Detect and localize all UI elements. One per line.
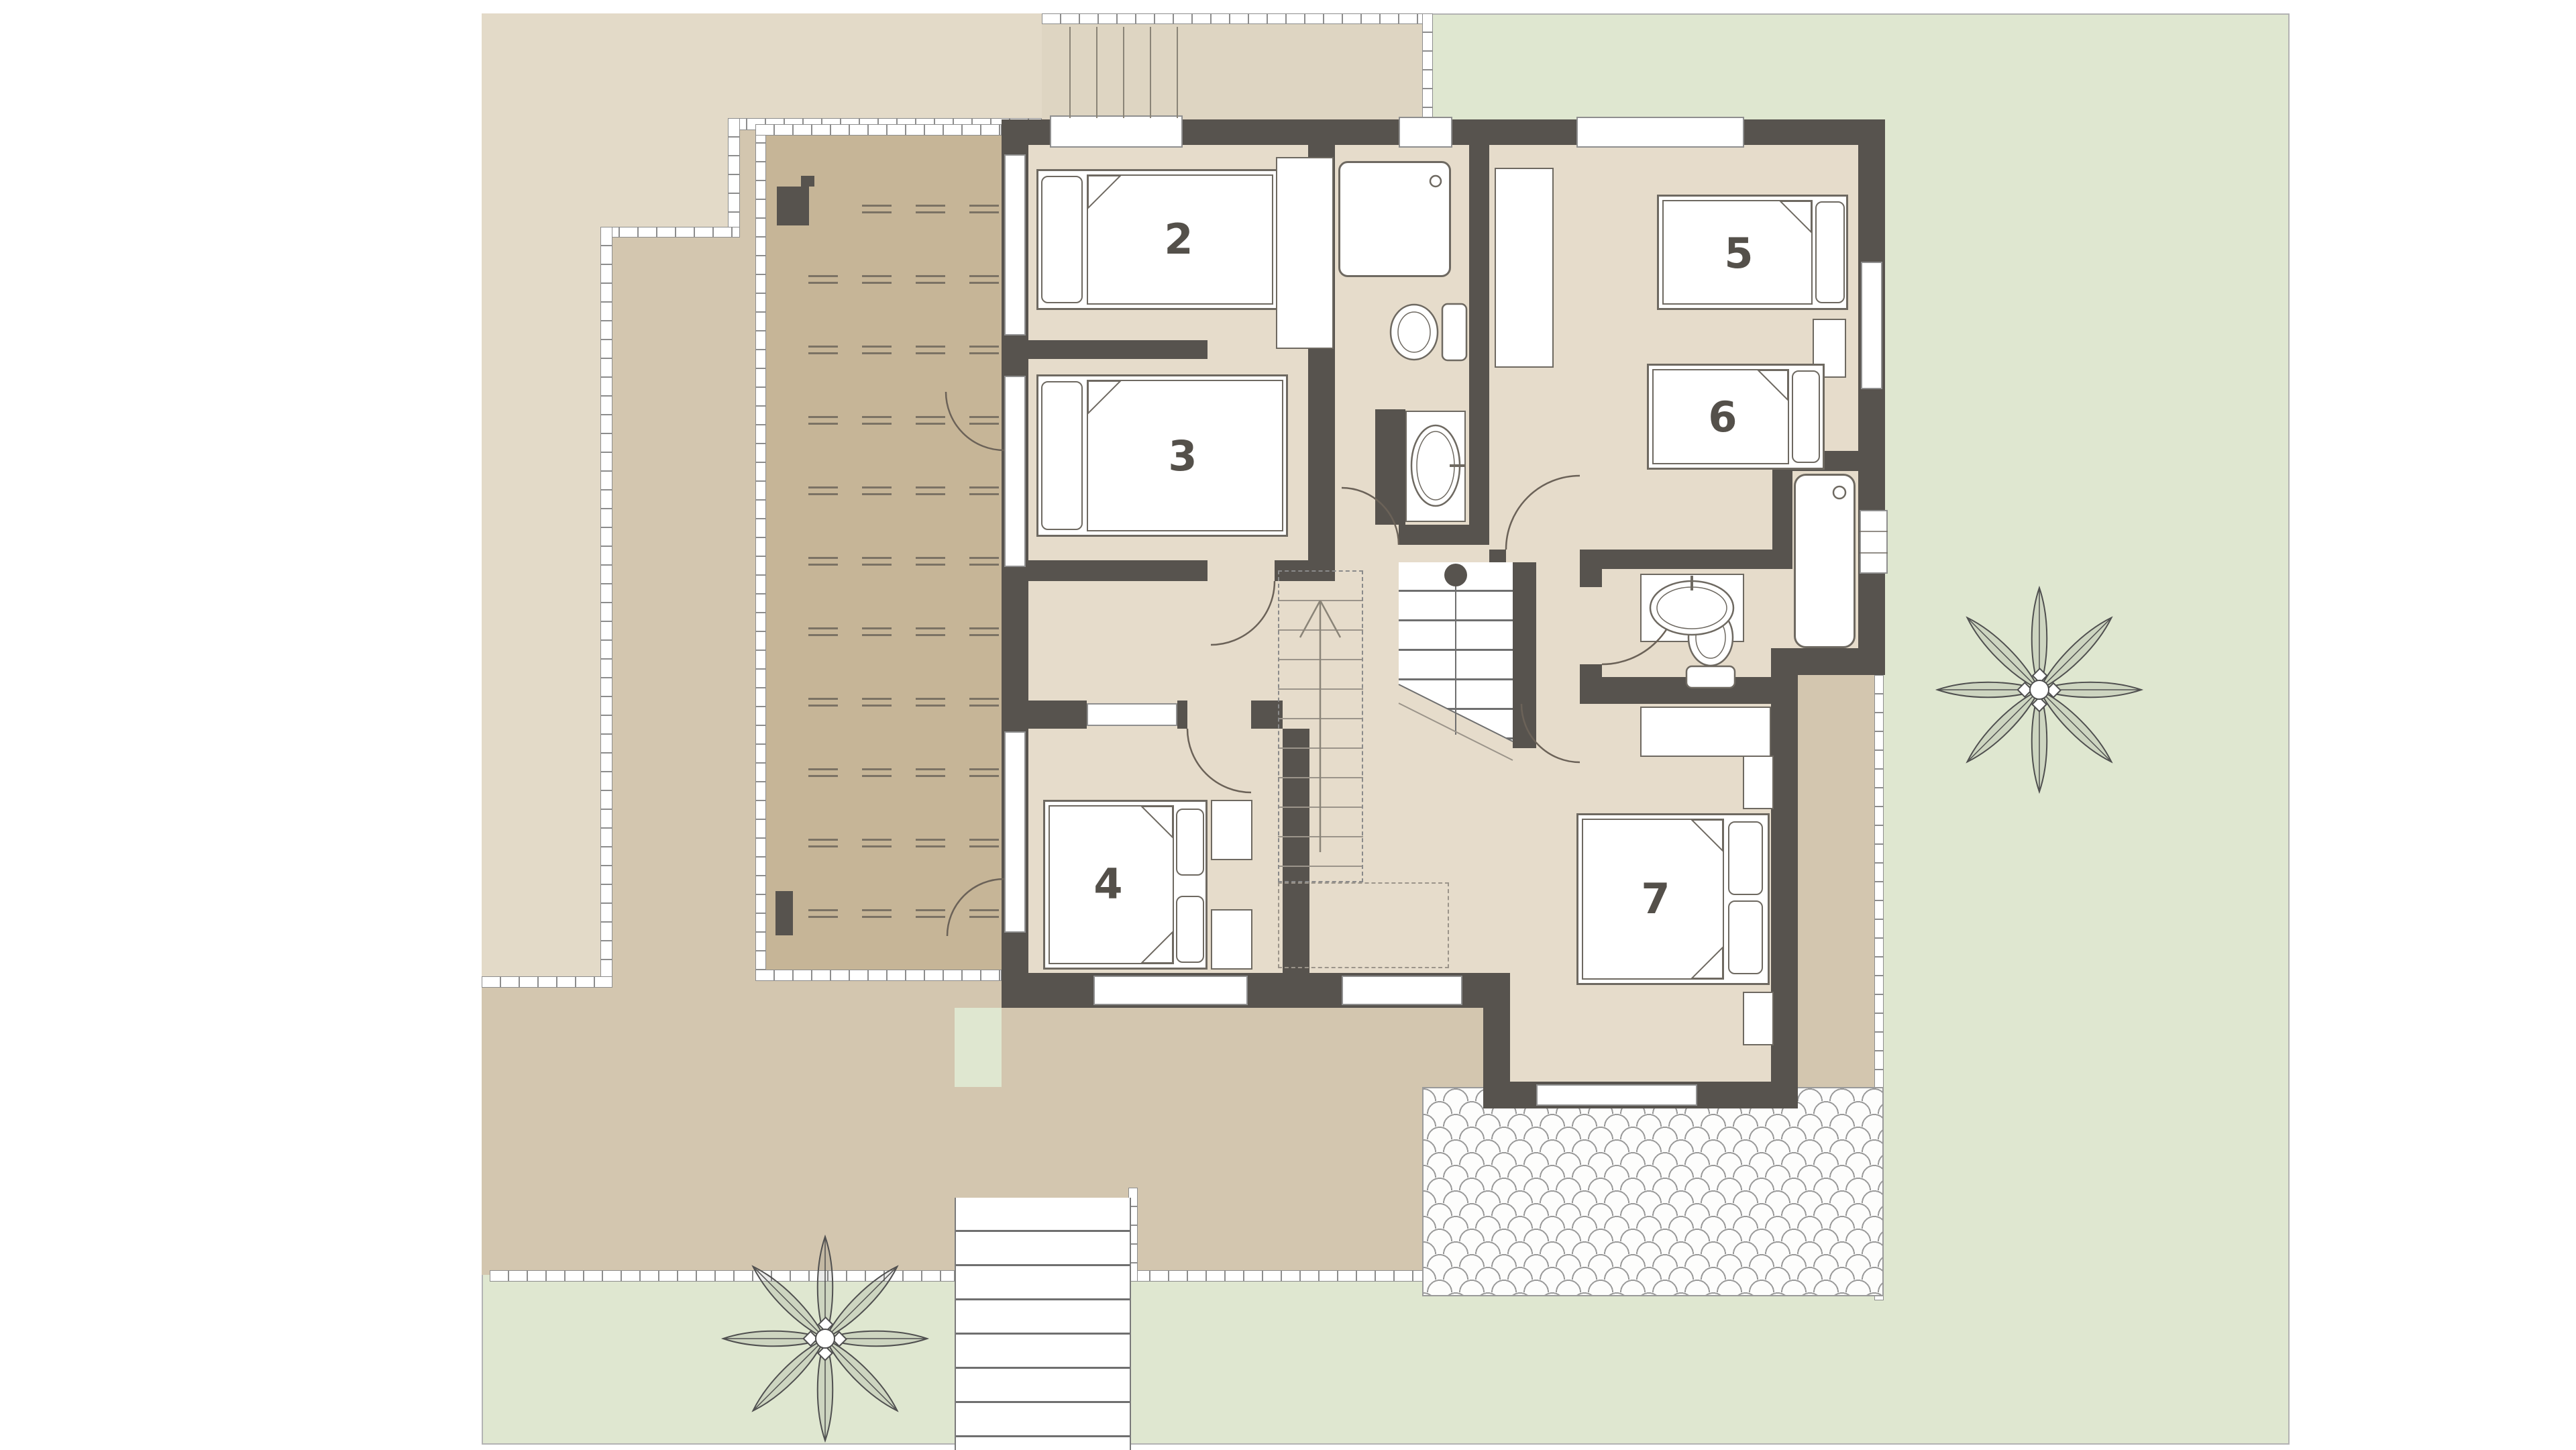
- nightstand-room4: [1211, 800, 1252, 860]
- deck-plank-mark: [916, 346, 945, 348]
- deck-plank-mark: [862, 839, 892, 841]
- driveway: [1131, 1198, 1422, 1275]
- bed-7-pillow: [1728, 900, 1763, 974]
- deck-plank-mark: [916, 845, 945, 847]
- deck-plank-mark: [862, 211, 892, 213]
- driveway: [1002, 1008, 1483, 1087]
- terrace-deck: [765, 136, 1002, 970]
- nightstand-room7: [1743, 756, 1774, 809]
- deck-plank-mark: [862, 564, 892, 566]
- deck-plank-mark: [969, 634, 999, 636]
- deck-plank-mark: [969, 416, 999, 418]
- fence-bottom-left: [490, 1270, 955, 1282]
- deck-plank-mark: [916, 282, 945, 284]
- deck-plank-mark: [916, 627, 945, 629]
- deck-plank-mark: [808, 352, 838, 354]
- bed-7-pillow: [1728, 821, 1763, 895]
- back-terrace: [1042, 13, 1428, 121]
- window-bath1-top: [1399, 117, 1452, 148]
- deck-plank-mark: [916, 705, 945, 707]
- wall-rooms23-divider: [1028, 340, 1207, 359]
- deck-plank-mark: [916, 423, 945, 425]
- deck-plank-mark: [862, 775, 892, 777]
- deck-plank-mark: [916, 634, 945, 636]
- deck-plank-mark: [862, 916, 892, 918]
- fence: [728, 118, 740, 238]
- window-bath2-right: [1860, 510, 1888, 574]
- deck-plank-mark: [808, 698, 838, 700]
- deck-plank-mark: [969, 493, 999, 495]
- driveway: [606, 236, 765, 983]
- wall-room4-north: [1177, 701, 1187, 729]
- deck-plank-mark: [862, 768, 892, 770]
- deck-plank-mark: [808, 282, 838, 284]
- wardrobe-room7: [1640, 707, 1771, 757]
- deck-plank-mark: [916, 557, 945, 559]
- sink-counter-bath2: [1640, 574, 1744, 642]
- door-terrace-middle: [1004, 376, 1026, 567]
- deck-plank-mark: [862, 557, 892, 559]
- deck-plank-mark: [862, 909, 892, 911]
- door-terrace-lower: [1004, 731, 1026, 933]
- room-4-label: 4: [1093, 864, 1122, 905]
- stairs-up-dashed-flight: [1278, 570, 1363, 882]
- deck-plank-mark: [862, 423, 892, 425]
- wardrobe-rooms56: [1495, 168, 1554, 368]
- driveway: [765, 981, 1002, 1008]
- stairs-dashed-landing: [1278, 882, 1449, 968]
- deck-plank-mark: [969, 211, 999, 213]
- fence-back-terrace: [1042, 13, 1428, 24]
- deck-plank-mark: [916, 205, 945, 207]
- deck-plank-mark: [808, 839, 838, 841]
- deck-plank-mark: [808, 768, 838, 770]
- deck-plank-mark: [969, 768, 999, 770]
- deck-plank-mark: [808, 775, 838, 777]
- wall-right: [1858, 119, 1885, 675]
- shower: [1338, 161, 1451, 277]
- bed-5-pillow: [1815, 201, 1845, 303]
- bed-3-pillow: [1041, 381, 1083, 530]
- deck-plank-mark: [808, 493, 838, 495]
- deck-plank-mark: [969, 352, 999, 354]
- fence: [482, 976, 612, 988]
- deck-plank-mark: [969, 557, 999, 559]
- deck-plank-mark: [916, 416, 945, 418]
- deck-plank-mark: [916, 564, 945, 566]
- deck-plank-mark: [862, 205, 892, 207]
- bathtub: [1794, 474, 1856, 648]
- nightstand-room4: [1211, 909, 1252, 970]
- window-room4-bottom: [1093, 976, 1248, 1005]
- deck-plank-mark: [808, 346, 838, 348]
- wall-bath2-south: [1580, 677, 1771, 704]
- deck-plank-mark: [862, 845, 892, 847]
- deck-plank-mark: [862, 275, 892, 277]
- window-room2-top: [1050, 115, 1183, 148]
- deck-plank-mark: [969, 564, 999, 566]
- deck-plank-mark: [808, 705, 838, 707]
- deck-plank-mark: [808, 564, 838, 566]
- deck-plank-mark: [916, 352, 945, 354]
- exterior-stairs-bottom: [955, 1198, 1131, 1450]
- wall-room7-right: [1771, 648, 1798, 1108]
- deck-plank-mark: [808, 423, 838, 425]
- deck-plank-mark: [808, 634, 838, 636]
- sink-counter-bath1: [1405, 411, 1466, 522]
- deck-plank-mark: [808, 916, 838, 918]
- deck-plank-mark: [808, 275, 838, 277]
- wall-bath1-stub: [1375, 409, 1405, 525]
- room-3-label: 3: [1168, 435, 1197, 477]
- deck-plank-mark: [969, 775, 999, 777]
- deck-plank-mark: [808, 909, 838, 911]
- driveway: [955, 1087, 1422, 1198]
- terrace-railing: [755, 970, 1002, 981]
- terrace-railing: [755, 124, 1002, 136]
- wall-bath2-west: [1580, 569, 1602, 587]
- deck-plank-mark: [808, 845, 838, 847]
- deck-plank-mark: [808, 627, 838, 629]
- deck-plank-mark: [969, 346, 999, 348]
- chimney-cap: [801, 176, 814, 187]
- window-hall-bottom: [1342, 976, 1462, 1005]
- deck-plank-mark: [862, 698, 892, 700]
- wall-stair-side: [1513, 562, 1536, 748]
- deck-plank-mark: [916, 493, 945, 495]
- driveway: [482, 983, 955, 1275]
- terrace-railing: [755, 124, 766, 981]
- deck-plank-mark: [969, 205, 999, 207]
- nightstand-room7: [1743, 992, 1774, 1045]
- deck-plank-mark: [969, 282, 999, 284]
- deck-plank-mark: [862, 282, 892, 284]
- deck-plank-mark: [969, 909, 999, 911]
- deck-plank-mark: [916, 775, 945, 777]
- deck-plank-mark: [969, 839, 999, 841]
- deck-plank-mark: [969, 845, 999, 847]
- deck-plank-mark: [916, 909, 945, 911]
- deck-plank-mark: [916, 839, 945, 841]
- deck-plank-mark: [969, 705, 999, 707]
- deck-plank-mark: [969, 916, 999, 918]
- window-room7-bottom: [1536, 1084, 1697, 1106]
- deck-plank-mark: [862, 346, 892, 348]
- deck-plank-mark: [808, 557, 838, 559]
- wall-step: [1483, 1008, 1510, 1108]
- deck-plank-mark: [862, 634, 892, 636]
- deck-plank-mark: [808, 486, 838, 488]
- wall-rooms56-south: [1580, 550, 1772, 569]
- window-rooms56-right: [1861, 262, 1882, 389]
- deck-plank-mark: [862, 486, 892, 488]
- deck-plank-mark: [862, 705, 892, 707]
- room-7-label: 7: [1641, 878, 1670, 920]
- window-room5-top: [1576, 117, 1744, 148]
- deck-plank-mark: [969, 275, 999, 277]
- room-6-label: 6: [1708, 397, 1737, 438]
- fence-bottom-right: [1131, 1270, 1424, 1282]
- wardrobe-rooms23: [1276, 157, 1334, 349]
- bed-4-pillow: [1176, 809, 1204, 876]
- side-yard-strip: [1798, 675, 1884, 1087]
- deck-plank-mark: [916, 916, 945, 918]
- window-room4-north: [1087, 703, 1177, 726]
- deck-plank-mark: [916, 768, 945, 770]
- deck-plank-mark: [969, 698, 999, 700]
- deck-plank-mark: [808, 416, 838, 418]
- deck-plank-mark: [969, 486, 999, 488]
- terrace-post: [775, 891, 793, 935]
- deck-plank-mark: [916, 486, 945, 488]
- deck-plank-mark: [862, 416, 892, 418]
- wall-room4-north: [1002, 701, 1087, 729]
- deck-plank-mark: [916, 698, 945, 700]
- deck-plank-mark: [916, 211, 945, 213]
- fence: [600, 227, 740, 238]
- deck-plank-mark: [862, 352, 892, 354]
- deck-plank-mark: [862, 627, 892, 629]
- bed-2-pillow: [1041, 176, 1083, 303]
- deck-plank-mark: [969, 627, 999, 629]
- fence: [600, 227, 612, 986]
- bed-6-pillow: [1792, 370, 1820, 463]
- chimney: [777, 187, 809, 225]
- tiled-lower-roof: [1422, 1087, 1884, 1296]
- wall-bath1-east: [1469, 145, 1489, 545]
- deck-plank-mark: [862, 493, 892, 495]
- floor-plan-canvas: 2 3 4 5 6 7: [0, 0, 2576, 1450]
- door-terrace-upper: [1004, 154, 1026, 335]
- bed-4-pillow: [1176, 896, 1204, 963]
- deck-plank-mark: [916, 275, 945, 277]
- wall-rooms23-south: [1002, 560, 1207, 581]
- room-2-label: 2: [1164, 219, 1193, 260]
- deck-plank-mark: [969, 423, 999, 425]
- fence-back-terrace: [1422, 13, 1433, 121]
- room-5-label: 5: [1724, 233, 1753, 274]
- wall-bath1-south: [1399, 525, 1489, 545]
